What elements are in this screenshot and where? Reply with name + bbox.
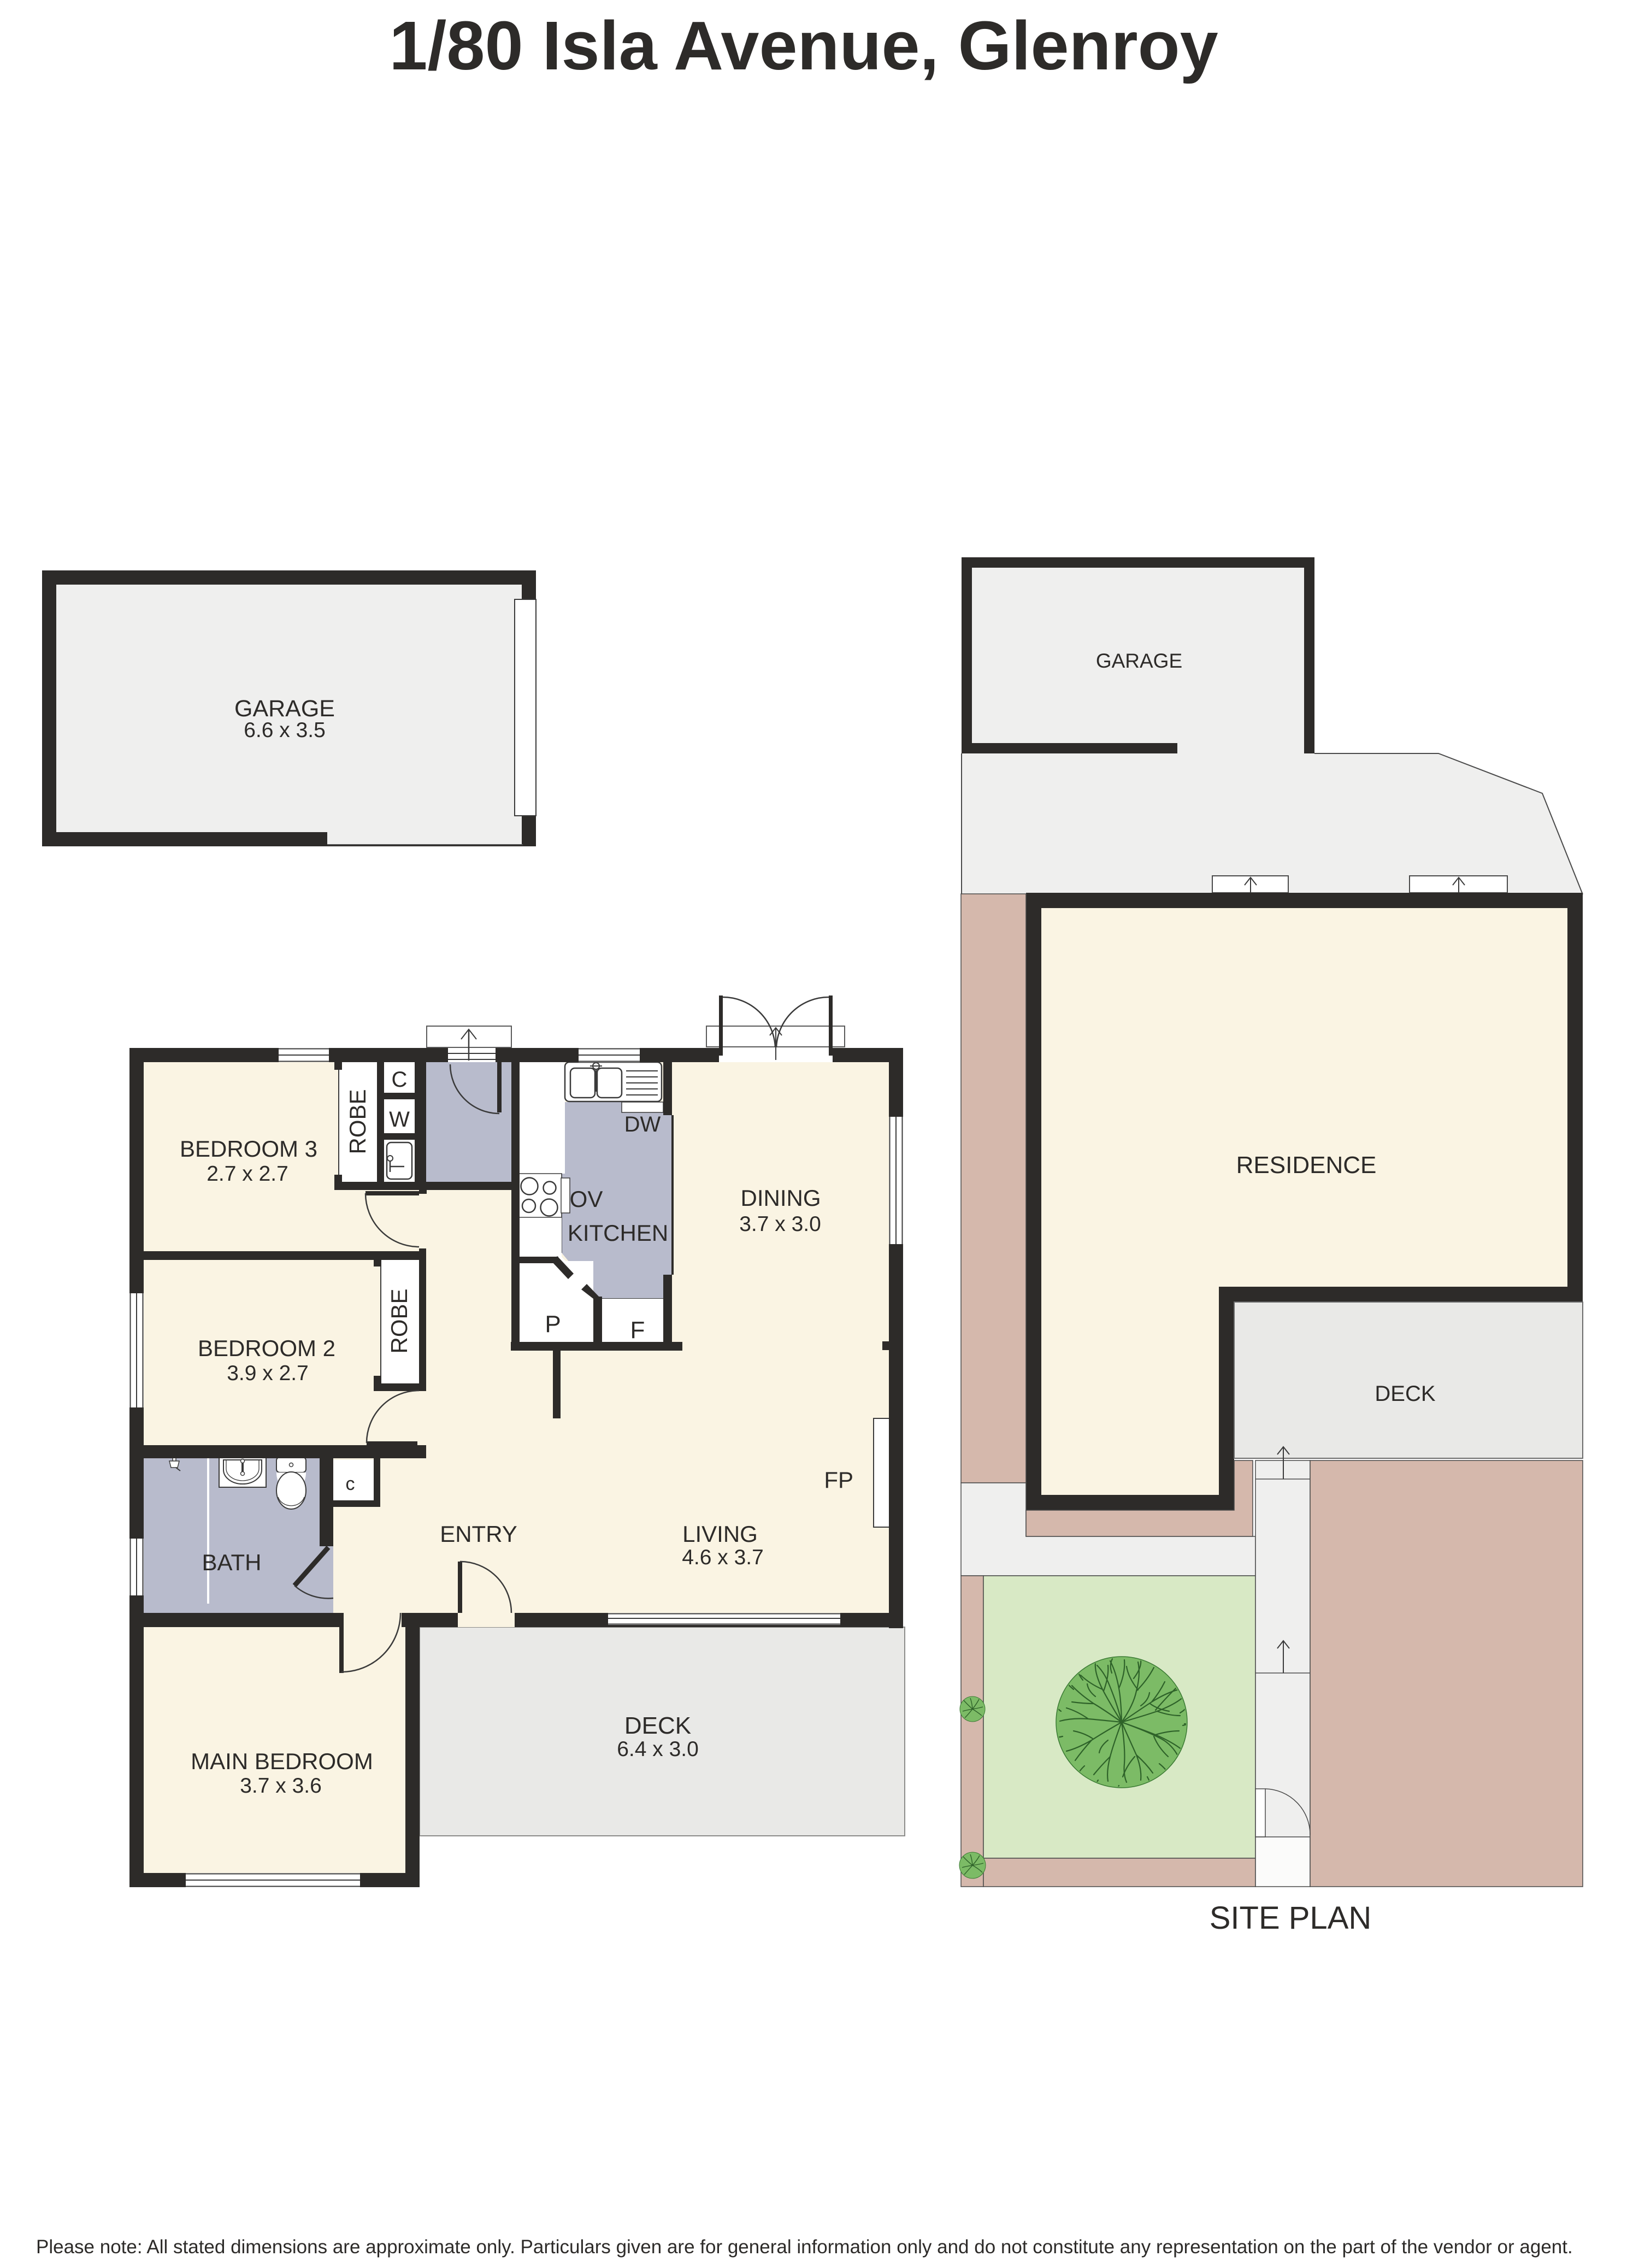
svg-text:2.7 x 2.7: 2.7 x 2.7 bbox=[207, 1162, 288, 1186]
svg-text:Please note: All stated dimens: Please note: All stated dimensions are a… bbox=[36, 2236, 1573, 2258]
svg-text:3.7 x 3.6: 3.7 x 3.6 bbox=[240, 1774, 322, 1798]
svg-text:C: C bbox=[392, 1068, 408, 1092]
svg-text:KITCHEN: KITCHEN bbox=[568, 1220, 668, 1246]
svg-text:4.6 x 3.7: 4.6 x 3.7 bbox=[682, 1546, 764, 1569]
svg-text:LIVING: LIVING bbox=[682, 1521, 758, 1547]
svg-text:GARAGE: GARAGE bbox=[1096, 650, 1182, 672]
svg-text:OV: OV bbox=[570, 1186, 603, 1212]
svg-text:c: c bbox=[346, 1474, 355, 1494]
svg-text:1/80 Isla Avenue, Glenroy: 1/80 Isla Avenue, Glenroy bbox=[389, 7, 1218, 84]
svg-text:BATH: BATH bbox=[202, 1550, 262, 1575]
svg-text:6.6 x 3.5: 6.6 x 3.5 bbox=[244, 718, 326, 742]
svg-text:DW: DW bbox=[624, 1112, 661, 1136]
svg-text:FP: FP bbox=[824, 1467, 853, 1493]
svg-text:DINING: DINING bbox=[741, 1185, 821, 1211]
svg-text:RESIDENCE: RESIDENCE bbox=[1236, 1152, 1377, 1179]
svg-text:GARAGE: GARAGE bbox=[234, 696, 335, 722]
svg-text:ROBE: ROBE bbox=[345, 1089, 370, 1154]
svg-text:P: P bbox=[545, 1311, 561, 1338]
svg-text:3.7 x 3.0: 3.7 x 3.0 bbox=[739, 1212, 821, 1236]
svg-text:BEDROOM 2: BEDROOM 2 bbox=[198, 1335, 335, 1361]
svg-text:F: F bbox=[630, 1317, 645, 1344]
svg-text:SITE PLAN: SITE PLAN bbox=[1210, 1900, 1372, 1936]
svg-text:ROBE: ROBE bbox=[386, 1288, 412, 1353]
svg-text:DECK: DECK bbox=[1375, 1382, 1435, 1406]
svg-text:3.9 x 2.7: 3.9 x 2.7 bbox=[227, 1362, 309, 1385]
svg-text:MAIN BEDROOM: MAIN BEDROOM bbox=[191, 1748, 373, 1774]
svg-text:W: W bbox=[389, 1108, 410, 1132]
svg-text:ENTRY: ENTRY bbox=[440, 1521, 517, 1547]
svg-text:BEDROOM 3: BEDROOM 3 bbox=[180, 1136, 317, 1162]
svg-text:6.4 x 3.0: 6.4 x 3.0 bbox=[617, 1737, 699, 1761]
svg-text:DECK: DECK bbox=[624, 1712, 691, 1739]
